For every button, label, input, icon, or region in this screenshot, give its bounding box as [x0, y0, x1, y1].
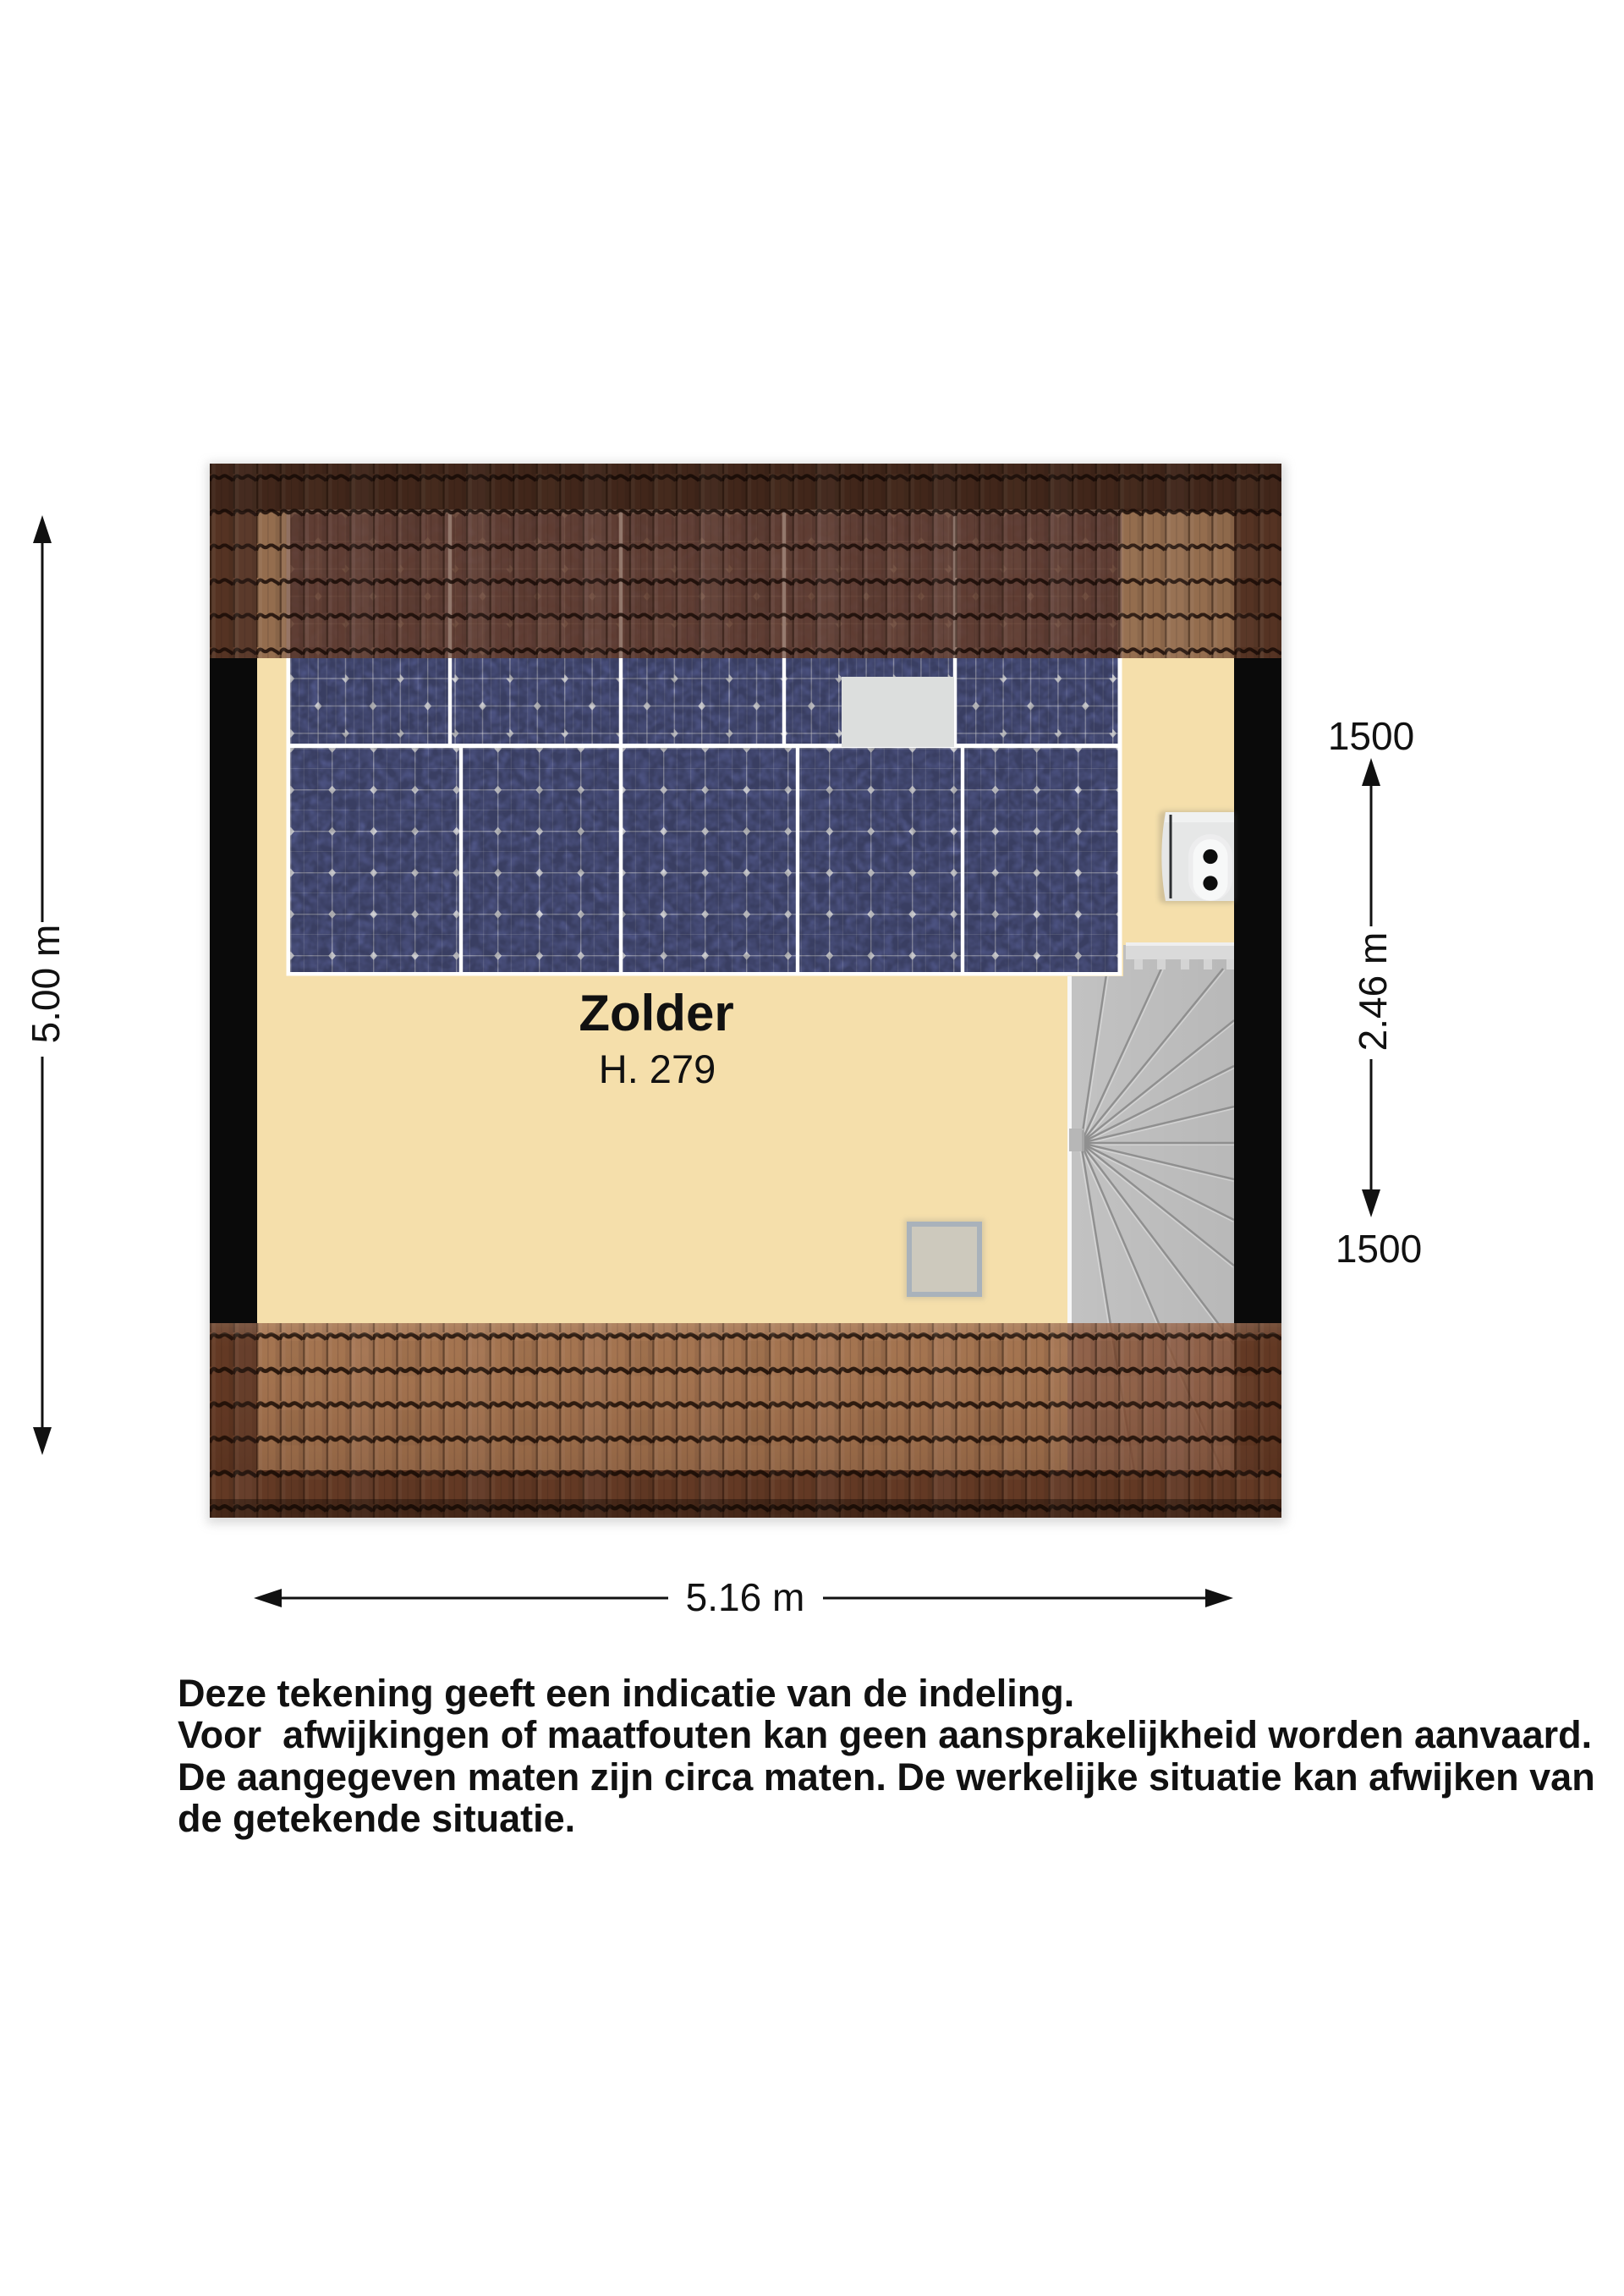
svg-text:De aangegeven maten zijn circa: De aangegeven maten zijn circa maten. De…: [178, 1755, 1595, 1799]
svg-text:Zolder: Zolder: [579, 985, 733, 1041]
svg-text:Deze tekening geeft een indica: Deze tekening geeft een indicatie van de…: [178, 1672, 1074, 1715]
svg-text:Voor afwijkingen of maatfoute: Voor afwijkingen of maatfouten kan geen …: [178, 1713, 1592, 1756]
svg-text:2.46 m: 2.46 m: [1351, 932, 1395, 1052]
svg-text:de getekende situatie.: de getekende situatie.: [178, 1797, 575, 1840]
svg-text:1500: 1500: [1328, 714, 1414, 758]
svg-text:5.16 m: 5.16 m: [686, 1575, 805, 1619]
svg-text:1500: 1500: [1336, 1227, 1422, 1271]
svg-text:H. 279: H. 279: [599, 1046, 716, 1091]
svg-text:5.00 m: 5.00 m: [24, 925, 68, 1044]
